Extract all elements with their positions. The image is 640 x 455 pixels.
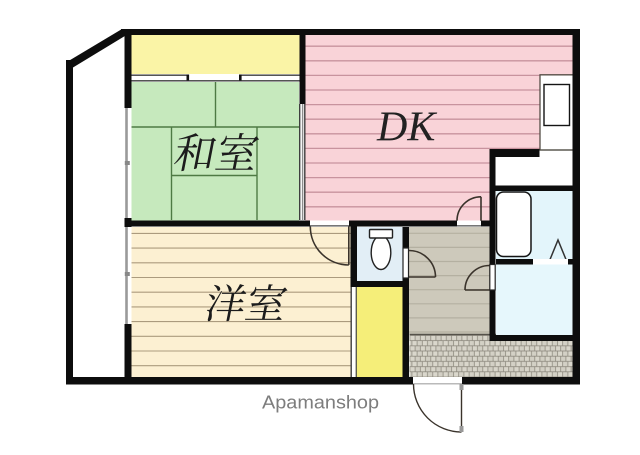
svg-text:Apamanshop: Apamanshop [262, 392, 379, 413]
svg-text:DK: DK [376, 105, 437, 151]
